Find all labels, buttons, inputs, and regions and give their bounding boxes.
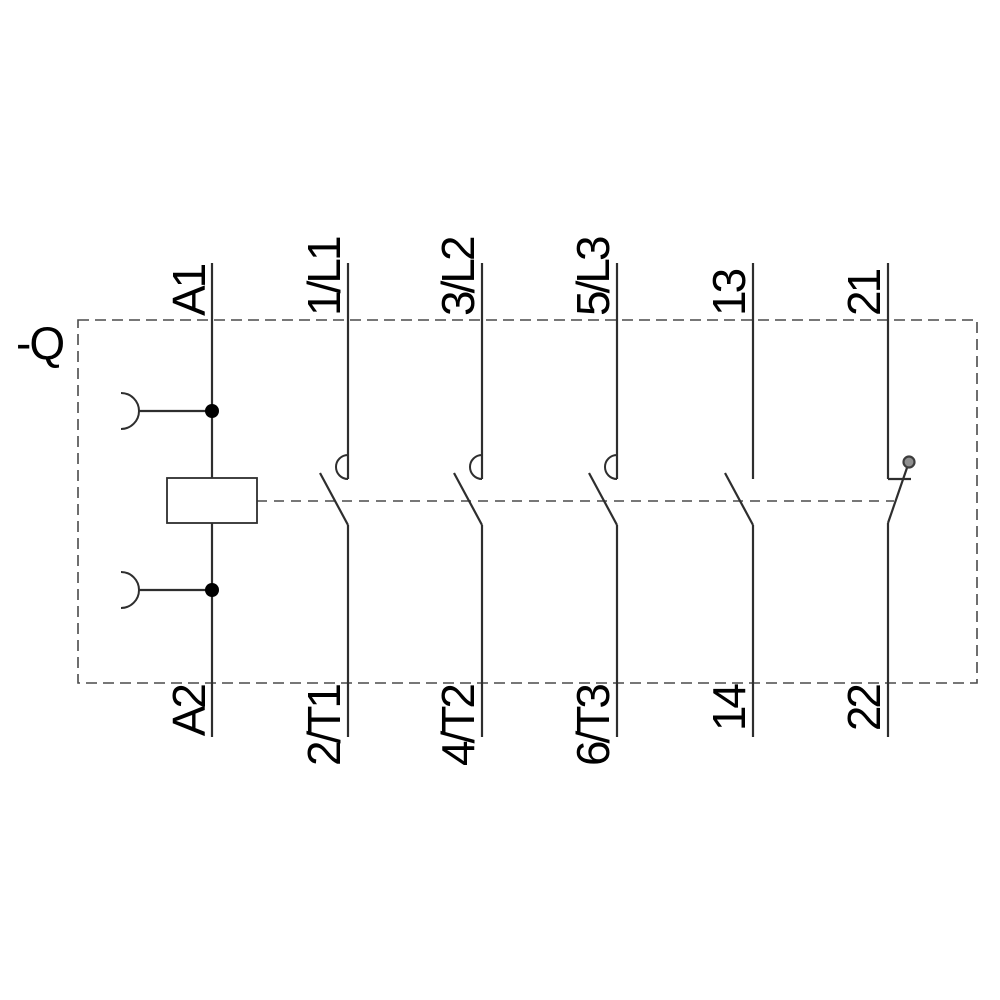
terminal-label-13: 13 <box>703 269 755 316</box>
terminal-label-14: 14 <box>703 684 755 732</box>
terminal-label-5l3: 5/L3 <box>567 237 619 316</box>
fixed-contact-arc-icon <box>605 455 617 479</box>
contactor-schematic: -Q A1 A2 1/L1 2 <box>0 0 1000 1000</box>
no-contact-blade <box>589 473 617 525</box>
coil-branch: A1 A2 <box>121 263 257 737</box>
coil-symbol <box>167 478 257 523</box>
no-contact-blade <box>725 473 753 525</box>
terminal-label-2t1: 2/T1 <box>298 685 350 766</box>
terminal-label-4t2: 4/T2 <box>432 685 484 766</box>
terminal-label-21: 21 <box>838 269 890 316</box>
main-pole-2: 3/L2 4/T2 <box>432 237 484 766</box>
device-label: -Q <box>16 317 63 369</box>
junction-dot <box>205 583 219 597</box>
coil-terminal-arc-icon <box>121 393 139 429</box>
fixed-contact-arc-icon <box>336 455 348 479</box>
terminal-label-a2: A2 <box>163 685 215 737</box>
terminal-label-1l1: 1/L1 <box>298 237 350 316</box>
coil-terminal-arc-icon <box>121 572 139 608</box>
junction-dot <box>205 404 219 418</box>
terminal-label-3l2: 3/L2 <box>432 237 484 316</box>
terminal-label-a1: A1 <box>163 264 215 316</box>
aux-pole-no: 13 14 <box>703 263 755 737</box>
terminal-label-22: 22 <box>838 685 890 732</box>
terminal-label-6t3: 6/T3 <box>567 685 619 766</box>
fixed-contact-arc-icon <box>470 455 482 479</box>
nc-contact-blade <box>888 462 909 523</box>
no-contact-blade <box>454 473 482 525</box>
contactor-schematic-page: -Q A1 A2 1/L1 2 <box>0 0 1000 1000</box>
aux-pole-nc: 21 22 <box>838 263 915 737</box>
main-pole-3: 5/L3 6/T3 <box>567 237 619 766</box>
nc-contact-pivot-icon <box>904 457 915 468</box>
no-contact-blade <box>320 473 348 525</box>
